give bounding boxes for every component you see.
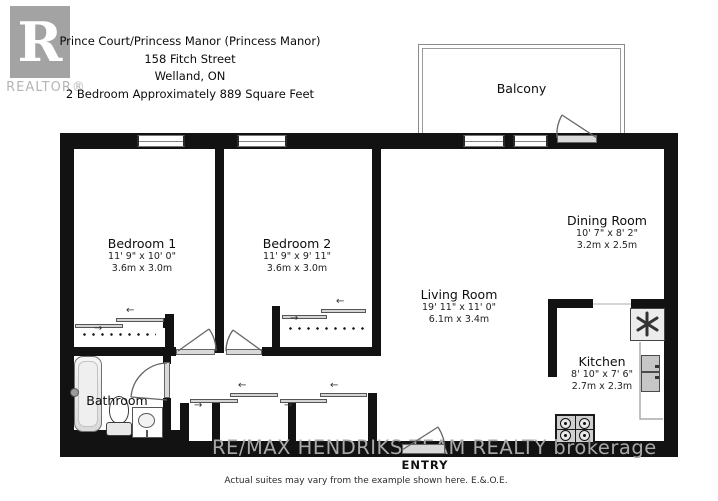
wall-bedroom2-bottom — [262, 347, 372, 356]
bedroom2-door-leaf — [226, 349, 262, 355]
window-bedroom2 — [237, 135, 287, 147]
title-line-city: Welland, ON — [55, 68, 325, 86]
wall-left — [60, 133, 74, 457]
refrigerator — [641, 355, 660, 392]
slide-arrow-left-icon: ← — [336, 297, 344, 307]
wall-bedroom1-bottom — [60, 347, 176, 356]
entry-door-leaf — [402, 444, 445, 454]
title-line-building: Prince Court/Princess Manor (Princess Ma… — [55, 33, 325, 51]
living-room-label: Living Room 19' 11" x 11' 0" 6.1m x 3.4m — [421, 287, 498, 326]
bathroom-door-leaf — [164, 362, 170, 398]
disclaimer-text: Actual suites may vary from the example … — [224, 476, 507, 486]
bedroom1-closet-rod — [80, 332, 156, 337]
wall-kitchen-north-right — [631, 299, 664, 308]
plan-title: Prince Court/Princess Manor (Princess Ma… — [55, 33, 325, 103]
slide-arrow-right-icon: → — [284, 401, 292, 411]
bathroom-label: Bathroom — [86, 393, 147, 408]
wall-right — [664, 133, 678, 457]
bedroom1-closet-doors — [74, 318, 165, 328]
slide-arrow-right-icon: → — [290, 314, 298, 324]
toilet-tank — [106, 422, 132, 436]
entry-label: ENTRY — [402, 458, 449, 472]
wall-kitchen-west — [548, 300, 557, 377]
slide-arrow-right-icon: → — [194, 401, 202, 411]
wall-bedroom2-closet-stub — [272, 306, 280, 347]
slide-arrow-right-icon: → — [94, 324, 102, 334]
bedroom1-label: Bedroom 1 11' 9" x 10' 0" 3.6m x 3.0m — [108, 236, 176, 275]
slide-arrow-left-icon: ← — [126, 306, 134, 316]
balcony-outline: Balcony — [418, 44, 625, 137]
bedroom2-label: Bedroom 2 11' 9" x 9' 11" 3.6m x 3.0m — [263, 236, 331, 275]
wall-kitchen-north-left — [548, 299, 593, 308]
title-line-summary: 2 Bedroom Approximately 889 Square Feet — [55, 86, 325, 104]
slide-arrow-left-icon: ← — [238, 381, 246, 391]
title-line-address: 158 Fitch Street — [55, 51, 325, 69]
slide-arrow-left-icon: ← — [330, 381, 338, 391]
balcony-door-leaf — [557, 135, 597, 143]
kitchen-label: Kitchen 8' 10" x 7' 6" 2.7m x 2.3m — [571, 354, 633, 393]
wall-bedroom1-bedroom2 — [215, 149, 224, 353]
wall-hall-closet-right — [368, 393, 377, 441]
sink-spout — [146, 430, 148, 437]
wall-bathroom-right-lower — [163, 398, 171, 441]
sink-basin — [138, 413, 155, 428]
dining-room-label: Dining Room 10' 7" x 8' 2" 3.2m x 2.5m — [567, 213, 647, 252]
bathroom-sink — [132, 407, 163, 438]
wall-bedroom2-living — [372, 149, 381, 356]
bathtub-faucet — [70, 388, 79, 397]
balcony-label: Balcony — [497, 81, 547, 96]
hall-closet-doors-1 — [189, 393, 279, 403]
floorplan-page: R REALTOR® Prince Court/Princess Manor (… — [0, 0, 718, 501]
bedroom2-closet-rod — [286, 326, 366, 331]
window-bedroom1 — [137, 135, 185, 147]
kitchen-fan-symbol-box — [630, 308, 665, 341]
wall-hall-closet-left — [180, 403, 189, 441]
bedroom1-door-leaf — [176, 349, 215, 355]
window-balcony-1 — [463, 135, 505, 147]
window-balcony-2 — [513, 135, 548, 147]
